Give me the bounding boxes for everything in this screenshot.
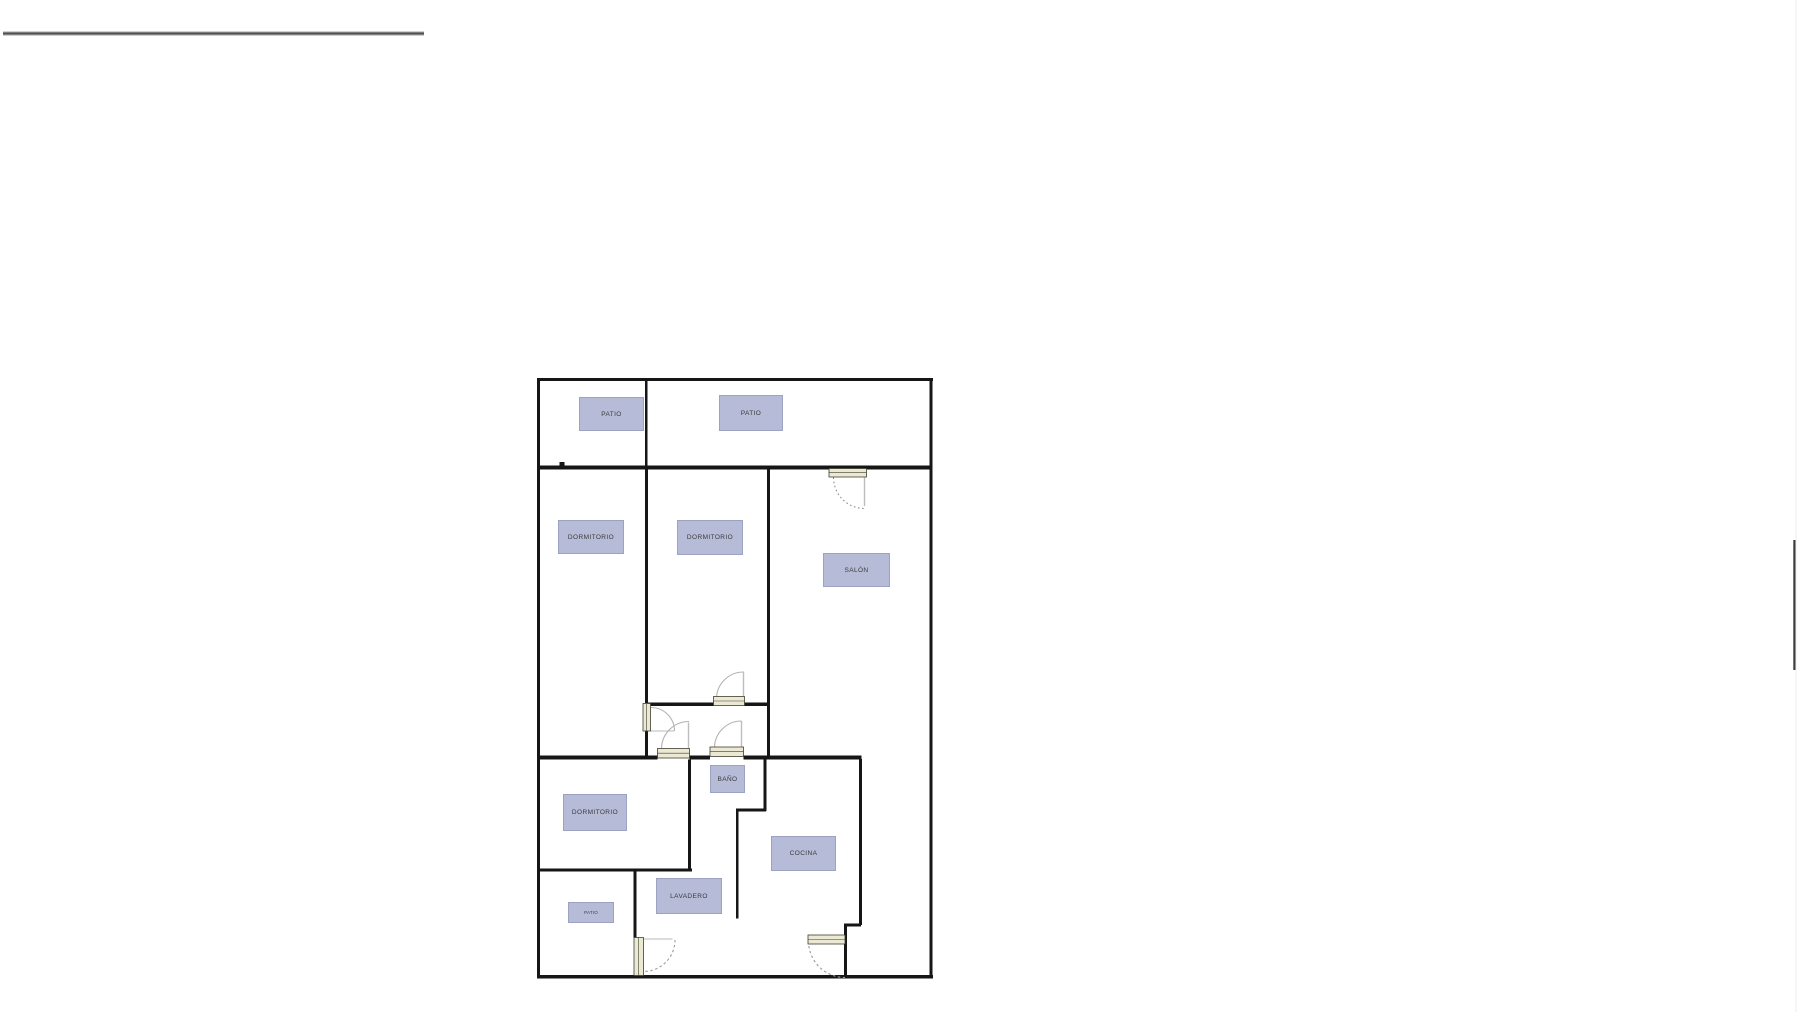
door-dormitorio-middle bbox=[714, 672, 745, 706]
wall-hall-bottom-mid bbox=[690, 756, 711, 760]
door-cocina bbox=[808, 935, 845, 978]
room-label-dormitorio-middle: DORMITORIO bbox=[677, 520, 743, 555]
room-label-bano: BAÑO bbox=[710, 765, 745, 793]
room-label-salon: SALÓN bbox=[823, 553, 890, 587]
wall-outer-bottom bbox=[537, 975, 933, 979]
walls bbox=[537, 378, 933, 979]
right-edge-faint-line bbox=[1796, 0, 1797, 1012]
wall-cocina-right bbox=[859, 759, 862, 925]
wall-bano-notch bbox=[736, 809, 766, 812]
room-label-dormitorio-left: DORMITORIO bbox=[558, 520, 624, 554]
room-label-cocina: COCINA bbox=[771, 836, 836, 871]
wall-lowerdorm-right bbox=[688, 760, 691, 872]
floor-plan: PATIO PATIO DORMITORIO DORMITORIO SALÓN … bbox=[0, 0, 1800, 1012]
door-swing-arc bbox=[717, 672, 744, 699]
top-left-annotation-line bbox=[3, 31, 424, 35]
floor-plan-drawing bbox=[0, 0, 1800, 1012]
wall-cocina-jog bbox=[844, 924, 861, 927]
door-bano bbox=[710, 721, 744, 757]
right-edge-mark bbox=[1793, 540, 1795, 670]
wall-hall-bottom-right bbox=[744, 756, 862, 760]
wall-middorm-bottom-right bbox=[744, 703, 768, 707]
wall-patio-bottom bbox=[537, 466, 933, 470]
door-swing-arc bbox=[809, 941, 846, 978]
door-dormitorio-left bbox=[643, 704, 675, 732]
wall-tick bbox=[560, 462, 565, 466]
wall-cocina-left bbox=[736, 811, 739, 919]
room-label-patio-left: PATIO bbox=[579, 397, 644, 431]
wall-patio-small-right bbox=[634, 871, 637, 938]
room-label-lavadero: LAVADERO bbox=[656, 878, 722, 914]
door-lavadero bbox=[634, 938, 675, 976]
wall-entry-right bbox=[844, 927, 847, 977]
wall-salon-divider bbox=[767, 470, 770, 759]
wall-dorm-divider-upper bbox=[645, 470, 648, 704]
wall-lowerdorm-bottom bbox=[537, 869, 692, 872]
wall-outer-top bbox=[537, 378, 933, 381]
wall-hall-bottom-left bbox=[537, 756, 658, 760]
door-swing-arc bbox=[651, 708, 675, 732]
room-label-patio-small: PATIO bbox=[568, 902, 614, 923]
room-label-dormitorio-lower: DORMITORIO bbox=[563, 794, 627, 831]
wall-patio-divider bbox=[645, 381, 648, 466]
room-label-patio-right: PATIO bbox=[719, 395, 783, 431]
wall-dorm-divider-lower bbox=[645, 731, 648, 756]
door-swing-arc bbox=[644, 940, 676, 972]
wall-bano-right bbox=[764, 759, 767, 811]
door-swing-arc bbox=[834, 478, 865, 509]
wall-middorm-bottom-left bbox=[648, 703, 714, 707]
door-swing-arc bbox=[662, 721, 690, 749]
door-dormitorio-lower bbox=[658, 721, 690, 758]
door-salon bbox=[829, 469, 867, 509]
door-swing-arc bbox=[715, 721, 742, 748]
